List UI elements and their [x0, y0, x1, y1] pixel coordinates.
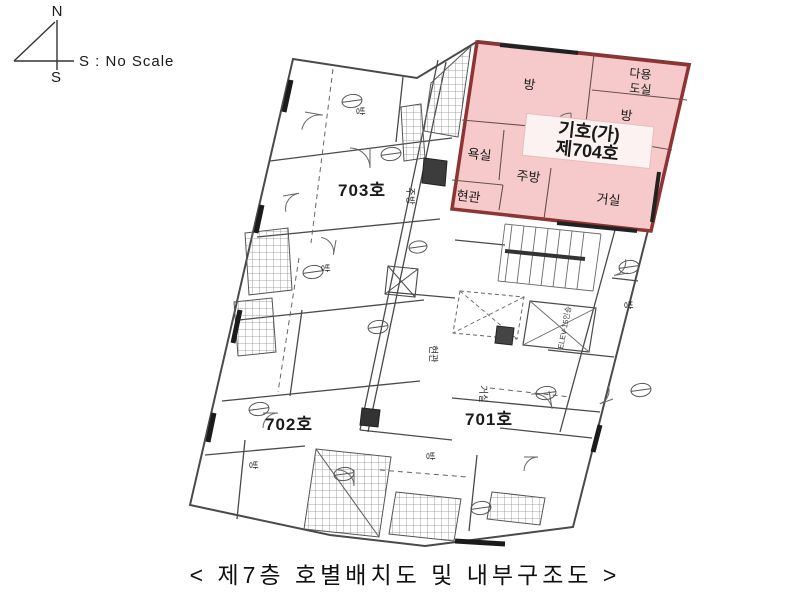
compass-south-label: S: [51, 69, 61, 86]
compass-north-label: N: [52, 3, 63, 20]
plan-label-room4: 방: [424, 452, 435, 461]
unit-702-label: 702호: [265, 415, 313, 434]
scale-note: S : No Scale: [79, 53, 174, 70]
plan-label-living: 거실: [477, 385, 488, 402]
room-label-bath: 욕실: [467, 146, 492, 163]
room-label-entrance: 현관: [456, 188, 481, 205]
unit-701-label: 701호: [465, 410, 513, 429]
plan-label-entrance: 현관: [427, 345, 438, 363]
unit-704-region: 방 다용 도실 방 욕실 주방 현관 거실 기호(가) 제704호: [452, 42, 689, 231]
room-label-right: 방: [620, 107, 634, 123]
plan-label-kitchen: 주방: [404, 187, 415, 205]
floor-plan-page: N S S : No Scale: [0, 0, 800, 600]
plan-label-room1: 방: [354, 107, 365, 116]
room-label-utility-line1: 다용: [629, 66, 652, 82]
compass: N S S : No Scale: [14, 3, 174, 86]
plan-label-room3: 방: [247, 461, 258, 470]
room-label-top: 방: [523, 76, 537, 92]
room-label-kitchen: 주방: [516, 168, 541, 185]
room-label-utility-line2: 도실: [629, 81, 652, 97]
floor-plan-canvas: N S S : No Scale: [0, 0, 800, 600]
room-label-living: 거실: [596, 191, 621, 208]
unit-703-label: 703호: [338, 181, 386, 200]
plan-label-room5: 방: [622, 301, 633, 310]
caption: < 제7층 호별배치도 및 내부구조도 >: [190, 562, 621, 588]
plan-label-room2: 방: [319, 264, 330, 273]
